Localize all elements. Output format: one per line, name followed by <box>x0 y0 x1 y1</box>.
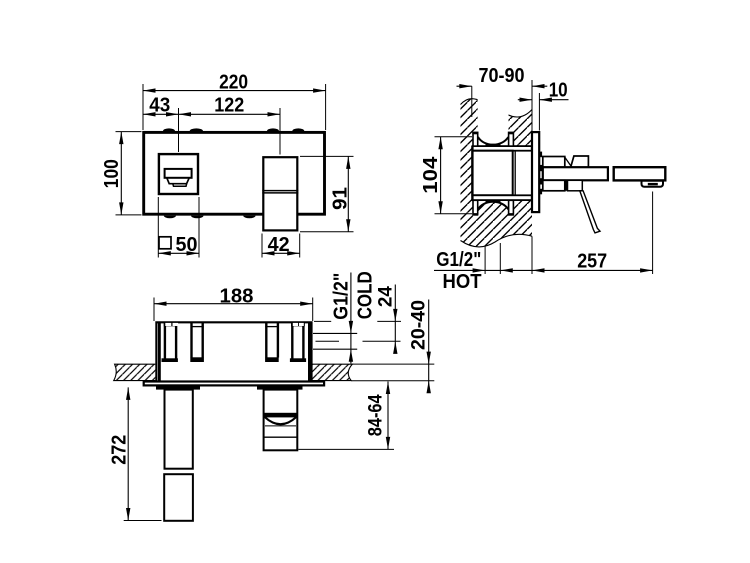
svg-text:70-90: 70-90 <box>479 64 525 87</box>
svg-text:20-40: 20-40 <box>408 300 429 350</box>
svg-text:HOT: HOT <box>443 270 482 293</box>
svg-text:10: 10 <box>549 79 568 102</box>
svg-text:100: 100 <box>100 159 123 188</box>
svg-text:50: 50 <box>176 233 198 256</box>
svg-text:91: 91 <box>328 187 351 210</box>
svg-text:257: 257 <box>577 249 607 272</box>
svg-text:43: 43 <box>149 93 170 116</box>
svg-text:24: 24 <box>375 286 396 307</box>
svg-text:G1/2": G1/2" <box>436 248 481 271</box>
svg-text:104: 104 <box>419 156 442 194</box>
svg-text:122: 122 <box>214 93 244 116</box>
svg-text:G1/2": G1/2" <box>329 273 352 320</box>
svg-text:COLD: COLD <box>353 271 376 319</box>
svg-text:42: 42 <box>268 233 290 256</box>
svg-text:84-64: 84-64 <box>365 394 386 436</box>
svg-text:272: 272 <box>108 435 131 465</box>
svg-text:220: 220 <box>219 71 248 94</box>
svg-text:188: 188 <box>220 285 254 308</box>
